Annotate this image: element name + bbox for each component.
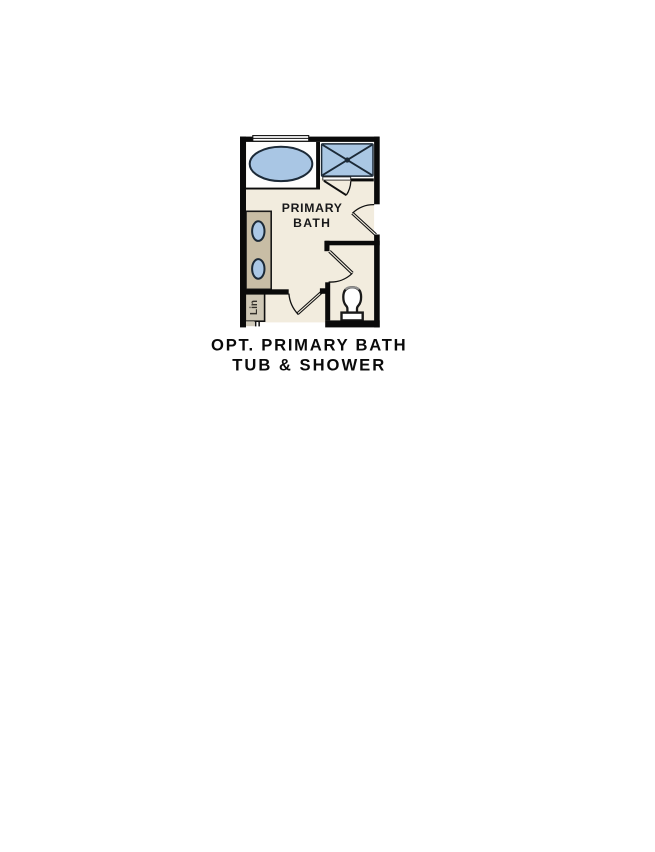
svg-text:TUB & SHOWER: TUB & SHOWER [232,356,386,375]
svg-text:Lin: Lin [249,300,260,315]
svg-text:PRIMARY: PRIMARY [282,201,343,215]
svg-text:OPT. PRIMARY BATH: OPT. PRIMARY BATH [211,336,407,355]
svg-text:BATH: BATH [293,216,331,230]
